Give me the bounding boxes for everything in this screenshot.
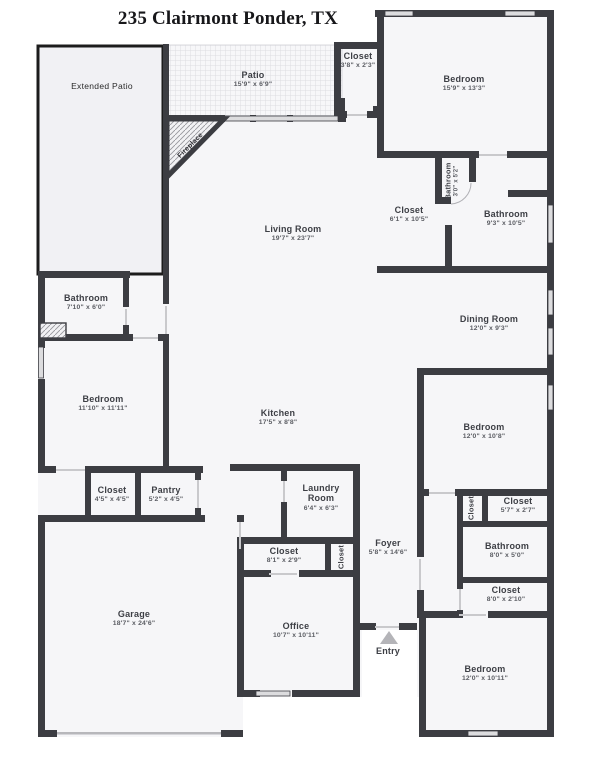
room-label-bedroom-left: Bedroom 11'10" x 11'11" (78, 394, 127, 412)
floor-plan-drawing (0, 0, 614, 768)
room-label-bathroom-small: Bathroom 3'0" x 5'2" (445, 162, 460, 199)
room-label-foyer: Foyer 5'8" x 14'6" (369, 538, 408, 556)
room-label-closet-top: Closet 3'8" x 2'3" (341, 51, 376, 69)
room-label-closet-57: Closet 5'7" x 2'7" (501, 496, 536, 514)
room-label-entry: Entry (376, 646, 400, 656)
room-label-kitchen: Kitchen 17'5" x 8'8" (259, 408, 298, 426)
room-label-garage: Garage 18'7" x 24'6" (113, 609, 156, 627)
room-label-closet-foyer: Closet (338, 545, 347, 569)
room-label-closet-vertical-right: Closet (468, 496, 477, 520)
shower-shape (40, 323, 66, 338)
garage-door-line (57, 732, 221, 735)
room-label-patio: Patio 15'9" x 6'9" (234, 70, 273, 88)
room-label-closet-hall: Closet 6'1" x 10'5" (390, 205, 429, 223)
room-label-bathroom-left: Bathroom 7'10" x 6'0" (64, 293, 108, 311)
room-label-extended-patio: Extended Patio (71, 82, 133, 92)
room-label-bedroom-mid: Bedroom 12'0" x 10'8" (463, 422, 506, 440)
room-label-bedroom-bottom-right: Bedroom 12'0" x 10'11" (462, 664, 508, 682)
room-label-office: Office 10'7" x 10'11" (273, 621, 319, 639)
room-label-closet-small: Closet 4'5" x 4'5" (95, 485, 130, 503)
room-label-closet-80: Closet 8'0" x 2'10" (487, 585, 526, 603)
room-label-bathroom-mid: Bathroom 8'0" x 5'0" (485, 541, 529, 559)
floor-plan-page: 235 Clairmont Ponder, TX (0, 0, 614, 768)
room-label-bathroom-top-right: Bathroom 9'3" x 10'5" (484, 209, 528, 227)
room-label-dining-room: Dining Room 12'0" x 9'3" (460, 314, 518, 332)
room-label-closet-hall2: Closet 8'1" x 2'9" (267, 546, 302, 564)
room-label-living-room: Living Room 19'7" x 23'7" (265, 224, 322, 242)
room-label-pantry: Pantry 5'2" x 4'5" (149, 485, 184, 503)
room-label-bedroom-top-right: Bedroom 15'9" x 13'3" (443, 74, 486, 92)
room-label-laundry-room: Laundry Room 6'4" x 6'3" (297, 483, 345, 512)
